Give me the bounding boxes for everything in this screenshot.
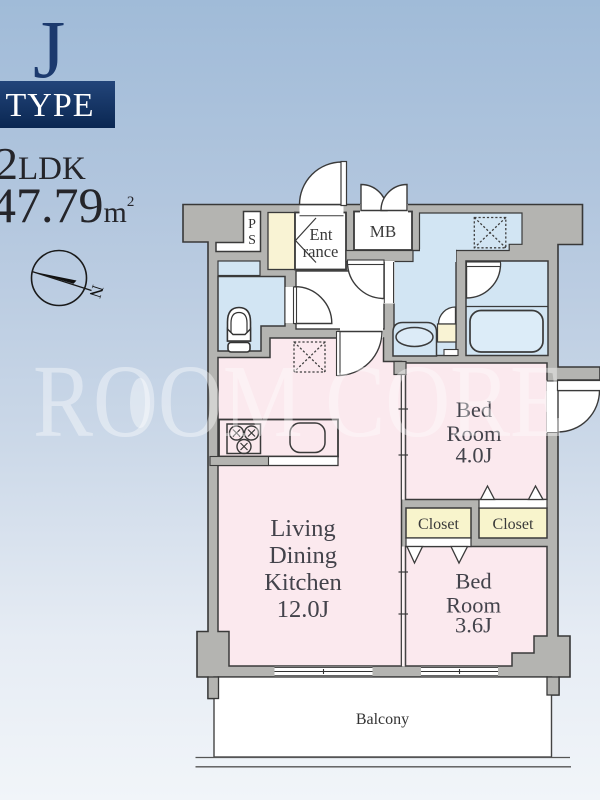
svg-text:MB: MB [370, 222, 396, 241]
svg-text:12.0J: 12.0J [277, 596, 330, 623]
svg-text:Bed: Bed [455, 569, 491, 594]
svg-text:N: N [86, 283, 108, 301]
svg-text:Closet: Closet [493, 516, 534, 533]
svg-text:Dining: Dining [269, 542, 337, 569]
svg-text:TYPE: TYPE [6, 87, 95, 124]
svg-text:47.79m2: 47.79m2 [0, 177, 134, 233]
svg-text:Closet: Closet [418, 516, 459, 533]
svg-text:Kitchen: Kitchen [264, 569, 342, 596]
svg-text:S: S [248, 233, 256, 248]
svg-text:3.6J: 3.6J [455, 613, 492, 638]
svg-text:ROOM CORE: ROOM CORE [33, 344, 565, 459]
svg-text:Living: Living [270, 515, 335, 542]
svg-text:Balcony: Balcony [356, 711, 409, 728]
svg-text:P: P [248, 217, 256, 232]
svg-text:rance: rance [303, 242, 339, 261]
